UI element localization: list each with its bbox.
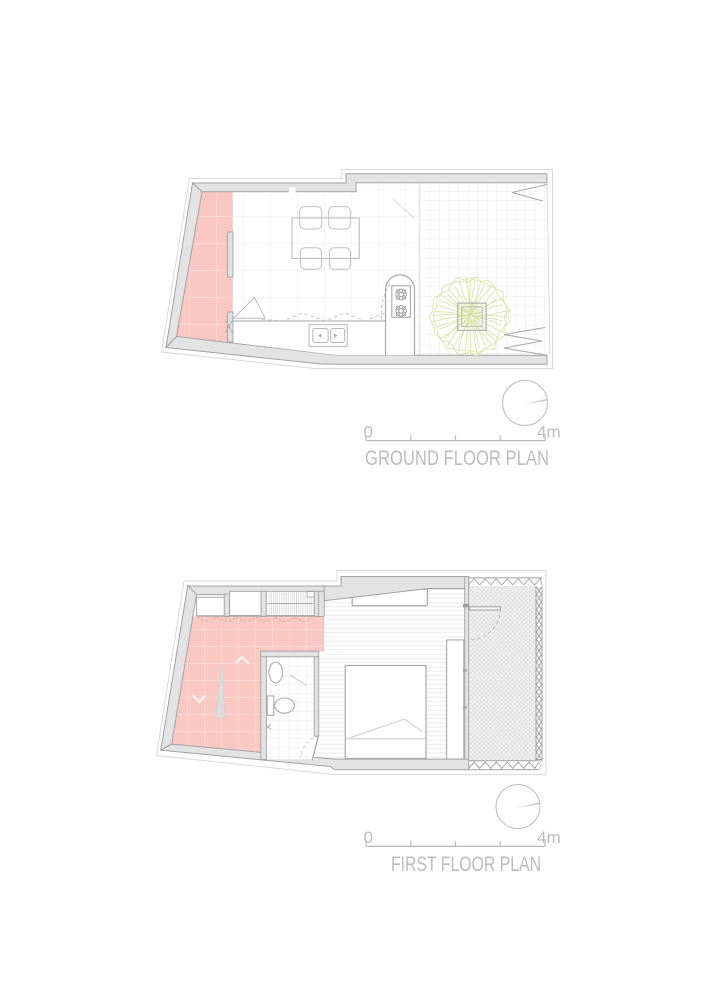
svg-text:4m: 4m bbox=[537, 828, 561, 847]
svg-text:GROUND FLOOR PLAN: GROUND FLOOR PLAN bbox=[365, 446, 549, 470]
svg-text:4m: 4m bbox=[537, 423, 561, 442]
svg-text:0: 0 bbox=[364, 828, 373, 847]
svg-text:FIRST FLOOR PLAN: FIRST FLOOR PLAN bbox=[391, 852, 541, 876]
svg-text:0: 0 bbox=[364, 423, 373, 442]
